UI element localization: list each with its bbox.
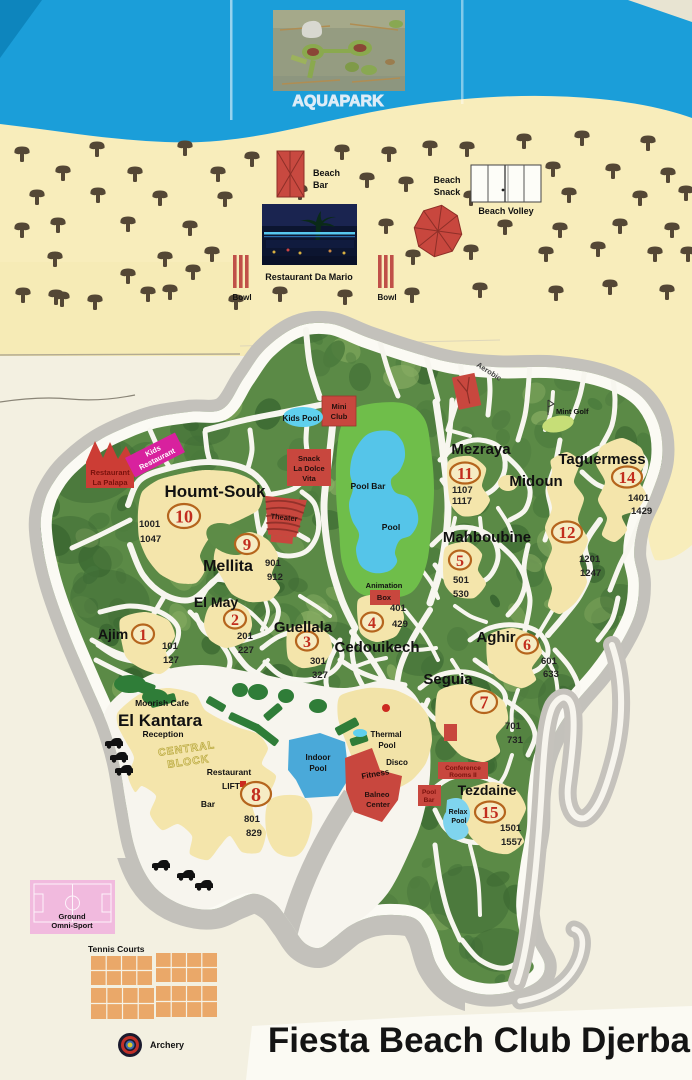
svg-text:Cedouikech: Cedouikech [334, 639, 419, 656]
svg-text:Snack: Snack [298, 454, 321, 463]
svg-text:Restaurant Da Mario: Restaurant Da Mario [265, 272, 353, 282]
svg-text:1201: 1201 [579, 554, 601, 565]
svg-text:14: 14 [619, 468, 637, 487]
svg-text:Conference: Conference [445, 765, 481, 772]
svg-text:401: 401 [390, 603, 407, 614]
svg-text:Balneo: Balneo [364, 790, 389, 799]
svg-text:901: 901 [265, 558, 282, 569]
svg-text:127: 127 [163, 655, 179, 666]
svg-text:11: 11 [457, 464, 473, 483]
svg-text:Pool: Pool [451, 818, 466, 825]
svg-text:Midoun: Midoun [509, 473, 562, 490]
svg-text:301: 301 [310, 656, 327, 667]
svg-text:Ground: Ground [58, 912, 85, 921]
svg-text:Archery: Archery [150, 1040, 184, 1050]
svg-text:Rooms II: Rooms II [449, 772, 477, 779]
svg-text:Snack: Snack [434, 187, 462, 197]
svg-text:La Dolce: La Dolce [293, 464, 324, 473]
svg-text:912: 912 [267, 572, 283, 583]
svg-text:327: 327 [312, 670, 328, 681]
svg-text:8: 8 [251, 784, 261, 806]
svg-text:Mini: Mini [332, 402, 347, 411]
svg-text:1401: 1401 [628, 493, 650, 504]
svg-text:Tezdaine: Tezdaine [458, 782, 517, 798]
svg-text:Bar: Bar [313, 180, 329, 190]
svg-text:Seguia: Seguia [423, 671, 473, 688]
svg-text:2: 2 [231, 612, 239, 629]
svg-text:701: 701 [505, 721, 522, 732]
svg-text:Bar: Bar [424, 797, 435, 804]
svg-text:429: 429 [392, 619, 408, 630]
svg-text:829: 829 [246, 828, 262, 839]
svg-text:AQUAPARK: AQUAPARK [292, 93, 384, 110]
svg-text:Bowl: Bowl [377, 293, 396, 302]
svg-text:Guellala: Guellala [274, 619, 333, 636]
svg-text:Aghir: Aghir [476, 629, 515, 646]
svg-text:4: 4 [368, 615, 376, 632]
svg-text:Mellita: Mellita [203, 558, 253, 575]
svg-text:5: 5 [456, 553, 464, 570]
svg-text:Beach: Beach [433, 175, 460, 185]
svg-text:3: 3 [303, 634, 311, 651]
svg-text:Fiesta Beach Club Djerba: Fiesta Beach Club Djerba [268, 1021, 691, 1060]
svg-text:1247: 1247 [580, 568, 601, 579]
svg-text:Pool: Pool [422, 789, 436, 796]
svg-text:Relax: Relax [449, 809, 468, 816]
svg-text:Pool Bar: Pool Bar [351, 481, 387, 491]
svg-text:9: 9 [243, 535, 252, 554]
svg-text:Taguermess: Taguermess [558, 451, 645, 468]
svg-text:501: 501 [453, 575, 470, 586]
svg-text:1107: 1107 [452, 485, 473, 496]
svg-text:7: 7 [480, 692, 489, 712]
svg-text:Club: Club [331, 412, 348, 421]
svg-text:12: 12 [559, 523, 576, 542]
svg-text:227: 227 [238, 645, 254, 656]
svg-text:La Palapa: La Palapa [92, 478, 128, 487]
svg-text:101: 101 [162, 641, 179, 652]
svg-text:1429: 1429 [631, 506, 652, 517]
svg-text:Pool: Pool [382, 522, 400, 532]
svg-text:Thermal: Thermal [370, 730, 401, 739]
svg-text:6: 6 [523, 637, 531, 654]
svg-text:Restaurant: Restaurant [207, 767, 252, 777]
svg-text:601: 601 [541, 656, 558, 667]
svg-text:Beach: Beach [313, 168, 340, 178]
svg-text:LIFT: LIFT [222, 781, 241, 791]
svg-text:El May: El May [194, 594, 239, 610]
svg-text:Mezraya: Mezraya [451, 441, 511, 458]
svg-text:1501: 1501 [500, 823, 522, 834]
svg-text:Indoor: Indoor [306, 753, 331, 762]
svg-text:15: 15 [482, 803, 499, 822]
svg-text:El Kantara: El Kantara [118, 711, 203, 730]
svg-text:Box: Box [377, 593, 392, 602]
svg-text:1: 1 [139, 627, 147, 644]
svg-text:801: 801 [244, 814, 261, 825]
svg-text:Kids Pool: Kids Pool [283, 414, 320, 423]
svg-text:Bowl: Bowl [232, 293, 251, 302]
svg-text:Restaurant: Restaurant [90, 468, 130, 477]
svg-text:Omni-Sport: Omni-Sport [51, 921, 93, 930]
svg-text:Pool: Pool [378, 741, 395, 750]
svg-text:10: 10 [175, 506, 193, 526]
svg-text:633: 633 [543, 669, 559, 680]
svg-text:201: 201 [237, 631, 254, 642]
svg-text:Center: Center [366, 800, 390, 809]
svg-text:1557: 1557 [501, 837, 522, 848]
svg-text:Moorish Cafe: Moorish Cafe [135, 698, 189, 708]
svg-text:Houmt-Souk: Houmt-Souk [164, 482, 266, 501]
svg-text:Reception: Reception [142, 729, 183, 739]
svg-text:Ajim: Ajim [98, 626, 128, 642]
svg-text:Mahboubine: Mahboubine [443, 529, 531, 546]
svg-text:530: 530 [453, 589, 469, 600]
svg-text:1047: 1047 [140, 534, 161, 545]
svg-text:Mint Golf: Mint Golf [556, 407, 589, 416]
svg-text:1117: 1117 [452, 496, 472, 507]
svg-text:Tennis Courts: Tennis Courts [88, 944, 145, 954]
svg-text:Pool: Pool [309, 764, 326, 773]
svg-text:Beach Volley: Beach Volley [478, 206, 533, 216]
svg-text:Vita: Vita [302, 474, 316, 483]
svg-text:Bar: Bar [201, 799, 216, 809]
svg-text:Disco: Disco [386, 758, 408, 767]
svg-text:1001: 1001 [139, 519, 161, 530]
svg-text:731: 731 [507, 735, 524, 746]
svg-text:Animation: Animation [366, 581, 403, 590]
